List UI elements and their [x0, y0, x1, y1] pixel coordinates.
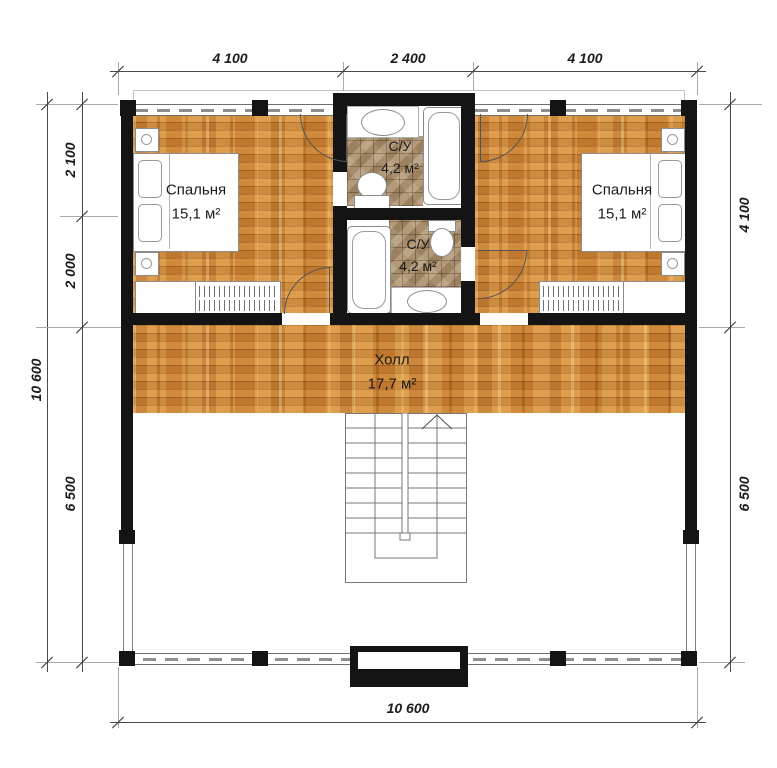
extension-line [699, 662, 745, 663]
lamp-icon [141, 134, 152, 145]
room-area: 4,2 м² [381, 160, 419, 176]
room-name: С/У [389, 138, 412, 154]
dim-left-2000: 2 000 [62, 253, 78, 288]
nightstand [661, 252, 685, 276]
pillow [138, 160, 162, 198]
post [119, 530, 135, 544]
clothes-hangers [199, 300, 277, 311]
toilet-tank [354, 195, 390, 209]
lamp-icon [141, 258, 152, 269]
bathtub-basin [352, 231, 386, 309]
dim-top-right: 4 100 [567, 50, 602, 66]
dresser-right [623, 281, 687, 316]
dim-left-2100: 2 100 [62, 142, 78, 177]
room-label-bedroom-left: Спальня 15,1 м² [166, 182, 226, 223]
post [252, 100, 268, 116]
floor-plan: Спальня 15,1 м² Спальня 15,1 м² С/У 4,2 … [0, 0, 777, 768]
extension-line [36, 104, 118, 105]
room-label-bedroom-right: Спальня 15,1 м² [592, 182, 652, 223]
wall-left [121, 104, 133, 530]
dimension-line-left-outer [47, 92, 48, 672]
dim-left-total: 10 600 [28, 359, 44, 402]
extension-line [697, 62, 698, 95]
bath-left-wall-lower [333, 206, 347, 313]
dimension-line-left-inner [82, 92, 83, 672]
door-leaf [346, 114, 347, 161]
nightstand [135, 128, 159, 152]
dim-top-left: 4 100 [212, 50, 247, 66]
bath-divider-wall [333, 208, 475, 220]
wardrobe-left [195, 281, 281, 316]
lamp-icon [667, 134, 678, 145]
lamp-icon [667, 258, 678, 269]
room-name: Спальня [166, 182, 226, 199]
nightstand [661, 128, 685, 152]
extension-line [473, 62, 474, 91]
post [681, 651, 697, 666]
door-leaf [329, 267, 330, 313]
dimension-line-bottom [110, 722, 706, 723]
room-name: Спальня [592, 182, 652, 199]
extension-line [36, 327, 121, 328]
wall-right [685, 104, 697, 530]
dimension-line-right [730, 92, 731, 672]
sink-icon [361, 109, 405, 136]
bath-right-wall-lower [461, 281, 475, 313]
room-name: Холл [374, 352, 409, 369]
dim-left-6500: 6 500 [62, 476, 78, 511]
staircase [345, 413, 467, 583]
room-area: 17,7 м² [368, 376, 417, 393]
extension-line [343, 62, 344, 91]
room-label-hall: Холл 17,7 м² [368, 352, 417, 393]
room-area: 4,2 м² [399, 258, 437, 274]
post [120, 100, 136, 116]
post [550, 100, 566, 116]
post [252, 651, 268, 666]
clothes-hangers [199, 286, 277, 297]
post [550, 651, 566, 666]
pillow [138, 204, 162, 242]
wardrobe-right [539, 281, 625, 316]
bath-right-wall-upper [461, 106, 475, 247]
extension-line [60, 216, 118, 217]
room-area: 15,1 м² [172, 206, 221, 223]
hall-wall-segment [528, 313, 685, 325]
dim-right-4100: 4 100 [736, 197, 752, 232]
nightstand [135, 252, 159, 276]
room-label-bath-bottom: С/У 4,2 м² [399, 236, 437, 274]
post [683, 530, 699, 544]
pillow [658, 204, 682, 242]
extension-line [118, 667, 119, 728]
railing-right [686, 544, 696, 653]
post [681, 100, 697, 116]
sink-icon [407, 290, 447, 313]
clothes-hangers [543, 286, 621, 297]
bath-block-top-wall [333, 93, 475, 106]
room-label-bath-top: С/У 4,2 м² [381, 138, 419, 176]
railing-left [123, 544, 133, 653]
extension-line [118, 62, 119, 95]
bathtub-icon [423, 107, 465, 205]
room-area: 15,1 м² [598, 206, 647, 223]
door-leaf [478, 250, 526, 251]
door-leaf [480, 114, 481, 161]
chimney-inner [358, 652, 460, 669]
dim-top-center: 2 400 [390, 50, 425, 66]
clothes-hangers [543, 300, 621, 311]
extension-line [699, 327, 745, 328]
dim-right-6500: 6 500 [736, 476, 752, 511]
post [119, 651, 135, 666]
bathtub-basin [428, 112, 460, 200]
pillow [658, 160, 682, 198]
hall-wall-segment [133, 313, 282, 325]
chimney-unit [350, 646, 468, 687]
hall-wall-segment [330, 313, 480, 325]
extension-line [36, 662, 119, 663]
dresser-left [135, 281, 197, 316]
extension-line [697, 667, 698, 728]
room-name: С/У [407, 236, 430, 252]
dim-bottom-total: 10 600 [387, 700, 430, 716]
dimension-line-top [110, 71, 706, 72]
bathtub-icon [347, 226, 391, 314]
